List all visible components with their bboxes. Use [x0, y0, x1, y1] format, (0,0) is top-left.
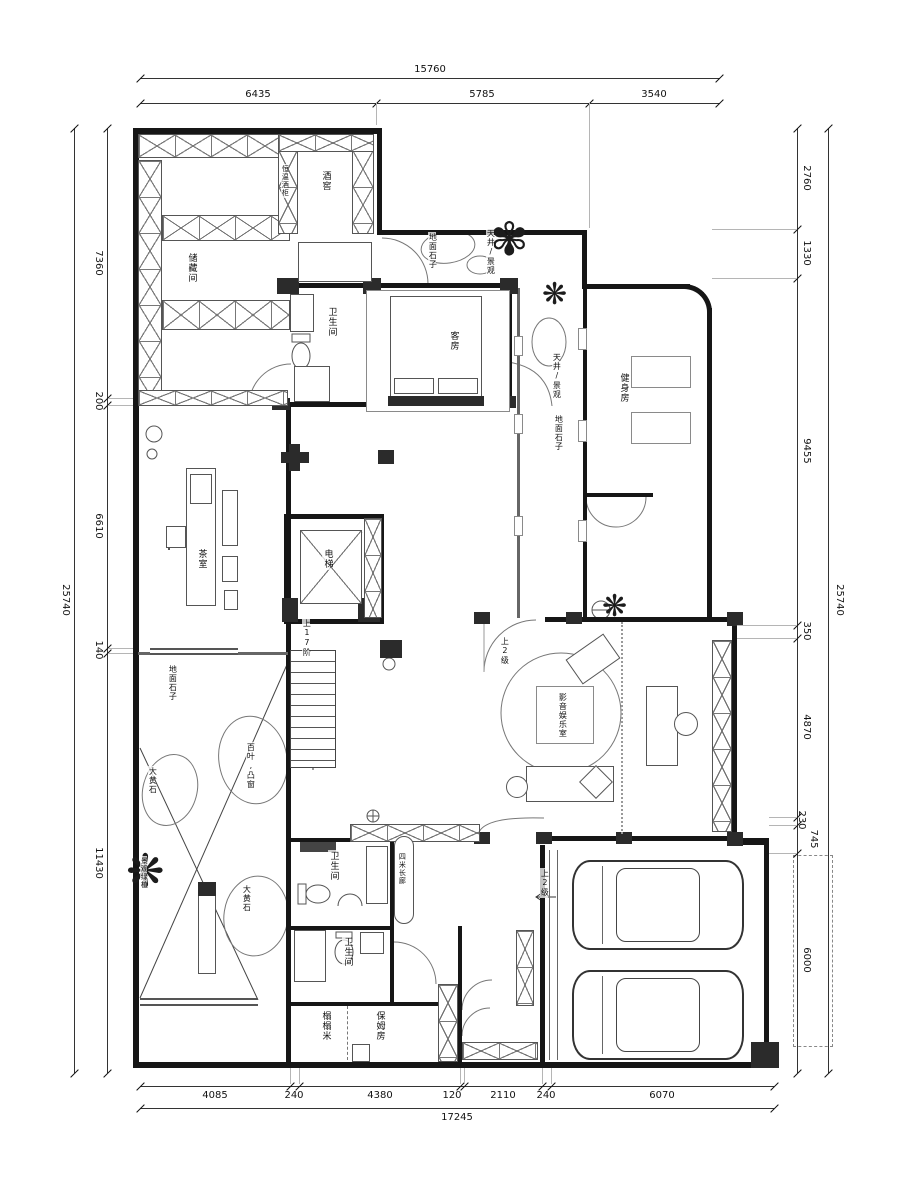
- dim-ext: [108, 405, 133, 406]
- label-pebbles-top: 地面石子: [428, 232, 436, 270]
- column: [536, 832, 552, 844]
- dim-bottom-seg: 2110: [490, 1090, 515, 1101]
- label-boulder-1: 大黄石: [148, 766, 156, 795]
- rack-shelf: [350, 824, 480, 842]
- label-steps-garage: 上2级: [540, 868, 548, 898]
- theater-stool: [506, 776, 528, 798]
- column: [378, 450, 394, 464]
- wall-bottom-outer: [133, 1062, 779, 1068]
- bed-pillow: [438, 378, 478, 394]
- dim-ext: [542, 1068, 543, 1084]
- dim-left-seg: 200: [93, 391, 104, 410]
- bed-pillow: [394, 378, 434, 394]
- dim-ext: [108, 653, 133, 654]
- wine-bench: [298, 242, 372, 282]
- column: [380, 640, 402, 658]
- nanny-room-divider: [347, 1006, 349, 1060]
- wall-top-mid: [377, 230, 587, 235]
- wall-bath-low-right: [390, 926, 394, 1004]
- dim-ext: [464, 1068, 465, 1084]
- room-label-elevator: 电梯: [322, 548, 331, 570]
- column: [751, 1042, 779, 1068]
- wall-right-upper: [707, 308, 712, 621]
- rack-shelf: [364, 518, 382, 618]
- glazing-jamb: [514, 336, 523, 356]
- plant-icon: ❋: [542, 280, 567, 310]
- dim-ext: [712, 229, 797, 230]
- dim-right-seg: 2760: [801, 165, 812, 190]
- dim-ext: [299, 1068, 300, 1084]
- dim-ext: [108, 398, 133, 399]
- ceiling-symbols: [367, 390, 610, 822]
- car-cabin: [616, 978, 700, 1052]
- dim-ext: [712, 278, 797, 279]
- flower-icon: ✾: [490, 216, 529, 262]
- dim-line: [140, 1086, 774, 1087]
- cross-column: [289, 444, 300, 471]
- dim-bottom-seg: 240: [536, 1090, 555, 1101]
- garage-step-line: [549, 850, 550, 1060]
- tea-kitchen-rings: [146, 426, 162, 459]
- dim-right-seg: 9455: [801, 438, 812, 463]
- glazing-jamb: [514, 414, 523, 434]
- dim-right-seg: 6000: [801, 947, 812, 972]
- window-bay: [150, 648, 238, 655]
- bath-top-sink-counter: [290, 294, 314, 332]
- dim-right-seg: 1330: [801, 240, 812, 265]
- dim-left-total: 25740: [60, 584, 71, 616]
- dim-line: [140, 1108, 774, 1109]
- car-hood-line: [602, 866, 603, 944]
- floor-plan: ❋ ✾ ❋ ❋ 储藏间 恒温酒柜 酒窖 卫生间 客房 天井/景观 地面石子 天井…: [0, 0, 898, 1200]
- glazing-jamb: [578, 520, 587, 542]
- dim-bottom-seg: 4085: [202, 1090, 227, 1101]
- tea-side-cabinet: [222, 490, 238, 546]
- rack-shelf: [162, 300, 290, 330]
- dim-ext: [290, 1068, 291, 1084]
- glazing-jamb: [578, 420, 587, 442]
- label-pebbles-left: 地面石子: [168, 664, 176, 702]
- glazing-jamb: [514, 516, 523, 536]
- dim-line: [797, 128, 798, 1073]
- gym-equipment: [631, 356, 691, 388]
- label-boulder-2: 大黄石: [242, 884, 250, 913]
- room-label-gym: 健身房: [618, 372, 627, 404]
- dim-right-total: 25740: [834, 584, 845, 616]
- dim-left-seg: 11430: [93, 847, 104, 879]
- room-label-wine-cellar: 酒窖: [320, 170, 329, 192]
- bed-headboard: [388, 396, 484, 406]
- dim-top-total: 15760: [414, 64, 446, 75]
- room-label-bath-mid: 卫生间: [328, 850, 337, 882]
- dim-right-seg: 745: [808, 829, 819, 848]
- nanny-cabinet: [352, 1044, 370, 1062]
- label-steps-theater: 上2级: [500, 636, 508, 666]
- dim-ext: [551, 1068, 552, 1084]
- dim-line: [140, 78, 720, 79]
- rack-shelf: [138, 134, 288, 158]
- dim-bottom-seg: 4380: [367, 1090, 392, 1101]
- gym-equipment: [631, 412, 691, 444]
- dim-ext: [376, 103, 377, 125]
- window-garden: [140, 998, 258, 1006]
- staircase: [290, 650, 336, 768]
- dim-ext: [589, 103, 590, 228]
- tea-stool: [224, 590, 238, 610]
- label-lightwell-top: 天井/景观: [486, 228, 494, 276]
- car-hood-line: [602, 976, 603, 1054]
- dim-bottom-total: 17245: [441, 1112, 473, 1123]
- wall-step-1: [377, 128, 382, 235]
- wall-garage-right: [764, 845, 769, 1065]
- room-label-tea: 茶室: [196, 548, 205, 570]
- wall-top-right: [582, 284, 690, 289]
- dim-right-seg: 230: [796, 810, 807, 829]
- wall-guest-top: [283, 283, 512, 288]
- column: [277, 278, 299, 294]
- label-long-corridor: 四米长廊: [398, 852, 405, 886]
- car-cabin: [616, 868, 700, 942]
- rack-shelf: [278, 134, 374, 152]
- column: [474, 612, 490, 624]
- dim-top-seg: 3540: [641, 89, 666, 100]
- dim-ext: [460, 1068, 461, 1084]
- room-label-guest: 客房: [448, 330, 457, 352]
- dim-ext: [108, 648, 133, 649]
- garage-step-line: [557, 850, 558, 1060]
- dim-bottom-seg: 6070: [649, 1090, 674, 1101]
- dim-left-seg: 7360: [93, 250, 104, 275]
- dim-ext: [737, 625, 797, 626]
- theater-sliding-track: [621, 622, 625, 834]
- dim-right-seg: 4870: [801, 714, 812, 739]
- dim-line: [74, 128, 75, 1073]
- dim-line: [107, 128, 108, 1073]
- dim-left-seg: 6610: [93, 513, 104, 538]
- closet-stool: [674, 712, 698, 736]
- room-label-tatami: 榻榻米: [320, 1010, 329, 1042]
- dim-ext: [737, 638, 797, 639]
- room-label-storage: 储藏间: [186, 252, 195, 284]
- room-label-theater: 影音娱乐室: [558, 692, 566, 739]
- bath-mid-vanity: [366, 846, 388, 904]
- dim-top-seg: 5785: [469, 89, 494, 100]
- label-lightwell-side: 天井/景观: [552, 352, 560, 400]
- dim-right-seg: 350: [801, 621, 812, 640]
- column: [566, 612, 582, 624]
- dim-line: [140, 103, 720, 104]
- wall-theater-bottom2: [545, 836, 737, 841]
- rack-shelf: [138, 390, 288, 406]
- tea-chair: [166, 526, 186, 548]
- rack-shelf: [438, 984, 458, 1062]
- room-label-nanny: 保姆房: [374, 1010, 383, 1042]
- column: [727, 832, 743, 846]
- label-bay-window: 百叶,凸窗: [246, 742, 254, 790]
- garden-bench-cap: [198, 882, 216, 896]
- bath-top-shower: [294, 366, 330, 402]
- rack-shelf: [516, 930, 534, 1006]
- rack-shelf: [462, 1042, 538, 1060]
- car-lift-dashed-outline: [793, 855, 833, 1047]
- rack-shelf: [138, 160, 162, 406]
- room-label-bath-low: 卫生间: [342, 936, 351, 968]
- dim-bottom-seg: 120: [442, 1090, 461, 1101]
- dim-left-seg: 140: [93, 640, 104, 659]
- wall-hall-door: [583, 493, 653, 497]
- room-label-bath-top: 卫生间: [326, 306, 335, 338]
- room-label-wine-cabinet: 恒温酒柜: [281, 164, 288, 198]
- rack-shelf: [712, 640, 732, 832]
- tea-table-tray: [190, 474, 212, 504]
- column: [727, 612, 743, 626]
- label-pebbles-side: 地面石子: [554, 414, 562, 452]
- bath-low-shower: [294, 930, 326, 982]
- wall-right-mid: [732, 617, 737, 841]
- wall-step-2: [582, 230, 587, 289]
- glazing-jamb: [578, 328, 587, 350]
- rack-shelf: [352, 150, 374, 234]
- plant-icon: ❋: [602, 592, 627, 622]
- wall-bath-bottom: [290, 1002, 462, 1006]
- label-stairs-up: 上17阶: [302, 618, 310, 658]
- dim-bottom-seg: 240: [284, 1090, 303, 1101]
- dim-ext: [769, 817, 797, 818]
- toilet-top: [292, 334, 310, 369]
- column: [282, 598, 298, 622]
- label-green-plants: 景观绿植: [140, 856, 147, 890]
- bath-low-vanity: [360, 932, 384, 954]
- rack-shelf: [162, 215, 290, 241]
- toilet-mid: [298, 884, 330, 904]
- tea-stool: [222, 556, 238, 582]
- dim-ext: [769, 825, 797, 826]
- tea-cabinet: [168, 548, 170, 550]
- dim-line: [828, 128, 829, 1073]
- dim-top-seg: 6435: [245, 89, 270, 100]
- dim-ext: [769, 853, 797, 854]
